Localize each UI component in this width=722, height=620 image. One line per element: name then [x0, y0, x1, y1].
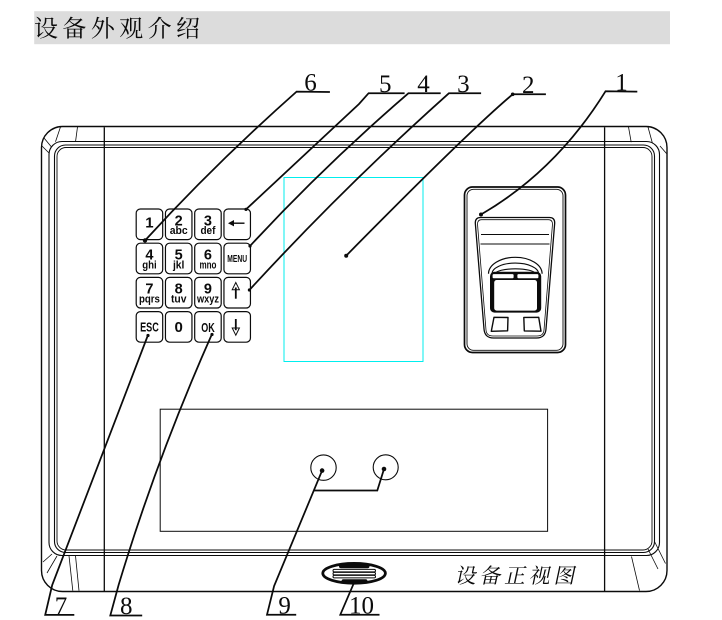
svg-text:3: 3: [457, 71, 470, 98]
svg-text:8: 8: [120, 593, 133, 620]
svg-text:def: def: [200, 225, 215, 237]
svg-text:abc: abc: [170, 225, 188, 237]
svg-text:5: 5: [379, 71, 392, 98]
svg-text:7: 7: [55, 593, 68, 620]
svg-text:wxyz: wxyz: [196, 294, 219, 306]
svg-text:6: 6: [304, 70, 317, 97]
svg-text:2: 2: [522, 72, 535, 99]
svg-text:0: 0: [175, 319, 183, 336]
svg-text:10: 10: [349, 593, 374, 620]
svg-text:OK: OK: [201, 321, 215, 335]
svg-text:tuv: tuv: [171, 294, 187, 306]
svg-text:1: 1: [145, 215, 153, 232]
svg-text:ghi: ghi: [142, 259, 157, 271]
svg-text:9: 9: [278, 593, 291, 620]
svg-text:MENU: MENU: [227, 254, 247, 265]
svg-text:4: 4: [417, 71, 430, 98]
svg-text:mno: mno: [199, 259, 216, 271]
svg-text:pqrs: pqrs: [139, 294, 160, 306]
svg-text:ESC: ESC: [140, 321, 159, 335]
svg-text:jkl: jkl: [172, 259, 184, 271]
svg-text:1: 1: [615, 70, 628, 97]
